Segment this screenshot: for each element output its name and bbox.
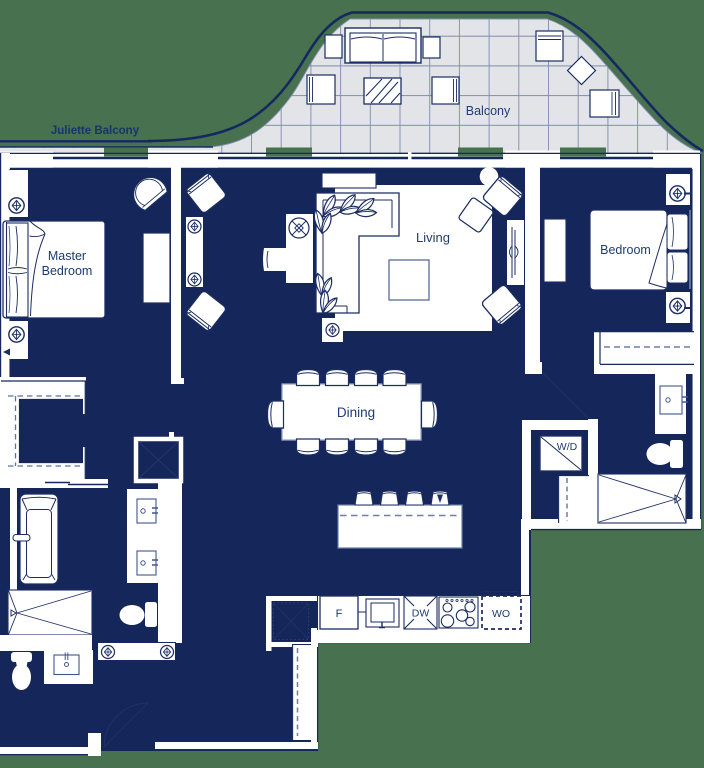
svg-text:DW: DW [412,608,430,620]
svg-text:F: F [336,608,343,620]
svg-text:Living: Living [416,230,450,245]
svg-text:Juliette Balcony: Juliette Balcony [51,125,140,137]
svg-text:Bedroom: Bedroom [42,264,93,278]
svg-text:Balcony: Balcony [466,104,511,118]
svg-text:Master: Master [48,249,86,263]
svg-text:WO: WO [492,608,510,620]
svg-text:W/D: W/D [557,441,578,453]
svg-text:Dining: Dining [337,405,375,420]
svg-text:Bedroom: Bedroom [600,243,651,257]
